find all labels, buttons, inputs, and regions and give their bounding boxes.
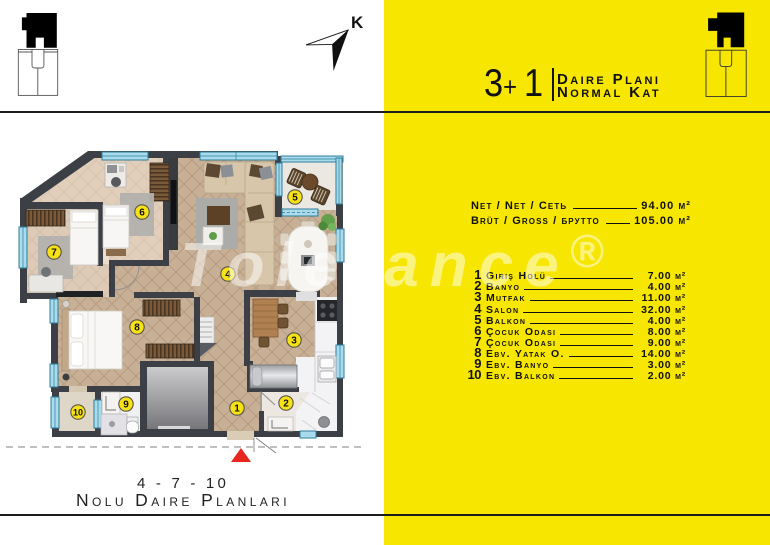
svg-text:5: 5 <box>292 193 298 204</box>
svg-text:1: 1 <box>234 404 240 415</box>
svg-text:3: 3 <box>291 336 297 347</box>
svg-text:8: 8 <box>134 323 140 334</box>
svg-text:9: 9 <box>123 400 129 411</box>
svg-text:2: 2 <box>283 399 289 410</box>
svg-text:10: 10 <box>73 408 83 418</box>
svg-text:6: 6 <box>139 208 145 219</box>
svg-text:7: 7 <box>51 248 57 259</box>
